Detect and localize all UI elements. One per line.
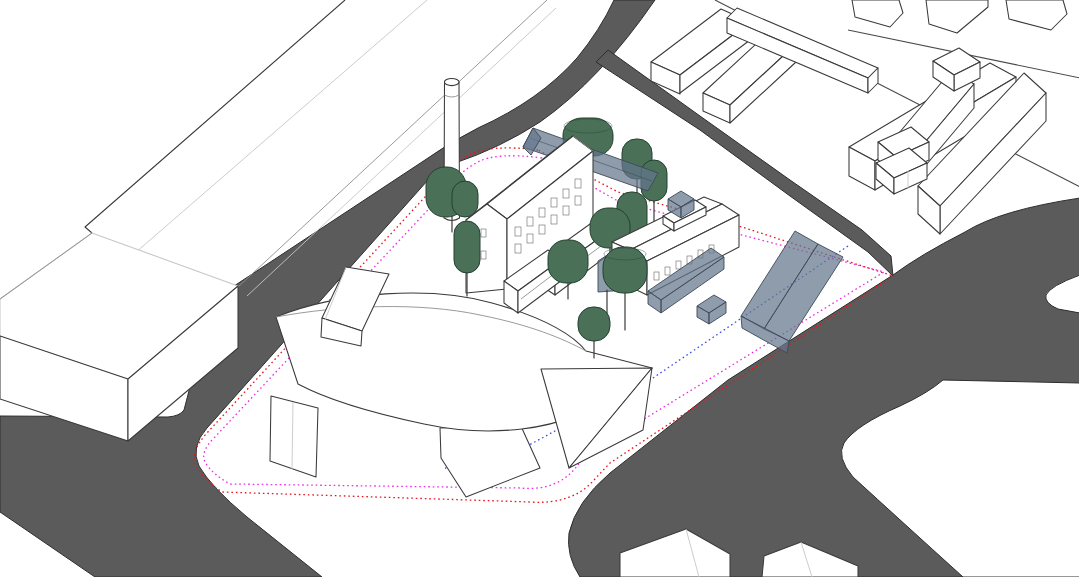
tree[interactable]: [452, 181, 478, 217]
window: [563, 189, 569, 198]
model-viewport[interactable]: [0, 0, 1079, 577]
pavilion-leg-center: [440, 424, 540, 497]
window: [527, 217, 533, 226]
top-edge-building[interactable]: [1006, 0, 1067, 30]
window: [551, 198, 557, 207]
top-edge-building[interactable]: [852, 0, 903, 27]
window: [481, 229, 486, 237]
window: [654, 272, 659, 280]
site-model-canvas[interactable]: [0, 0, 1079, 577]
window: [515, 244, 521, 253]
window: [575, 179, 581, 188]
window: [575, 196, 581, 205]
window: [676, 261, 681, 269]
tree[interactable]: [603, 247, 647, 293]
window: [539, 225, 545, 234]
tree[interactable]: [548, 240, 588, 283]
slab-roof-back-edge: [85, 0, 345, 233]
window: [527, 234, 533, 243]
window: [563, 206, 569, 215]
window: [665, 267, 670, 275]
northeast-housing-blocks[interactable]: [651, 0, 1067, 234]
window: [539, 208, 545, 217]
window: [481, 251, 486, 259]
pavilion-leg-left: [270, 396, 318, 477]
tree[interactable]: [578, 307, 610, 341]
window: [515, 227, 521, 236]
top-edge-building[interactable]: [926, 0, 988, 33]
chimney-top: [444, 78, 459, 85]
window: [551, 215, 557, 224]
curved-roof-pavilion[interactable]: [270, 267, 652, 497]
tree[interactable]: [454, 221, 480, 273]
